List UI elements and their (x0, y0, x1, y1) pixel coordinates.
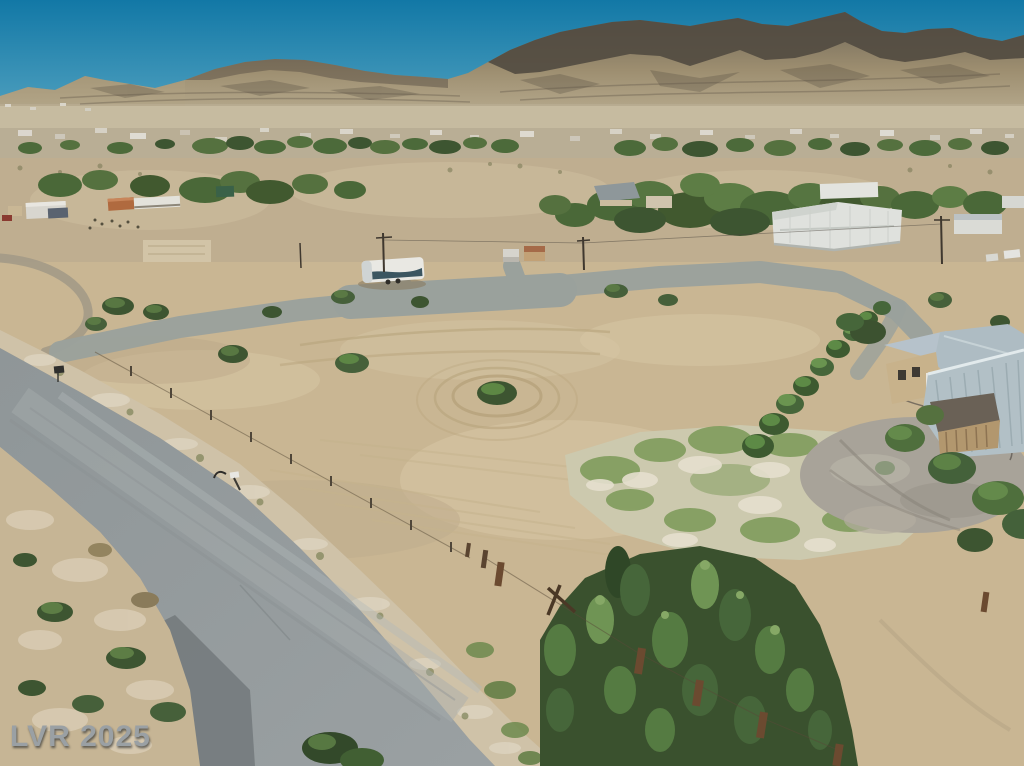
foundation-pad (143, 240, 211, 262)
house-window (898, 370, 906, 380)
white-trailer (1004, 249, 1021, 259)
aerial-photo-canvas (0, 0, 1024, 766)
watermark-text: LVR 2025 (10, 720, 151, 754)
wood-shed (930, 393, 1000, 454)
distant-valley (0, 104, 1024, 164)
beige-house (646, 196, 672, 208)
green-dumpster (216, 186, 234, 198)
small-shed (8, 206, 22, 216)
white-building (820, 182, 878, 199)
dark-trailer (48, 207, 68, 218)
red-vehicle (2, 215, 12, 221)
warehouse (772, 202, 902, 250)
house-window (912, 367, 920, 377)
aerial-photo: LVR 2025 (0, 0, 1024, 766)
rv-trailer (358, 257, 426, 290)
